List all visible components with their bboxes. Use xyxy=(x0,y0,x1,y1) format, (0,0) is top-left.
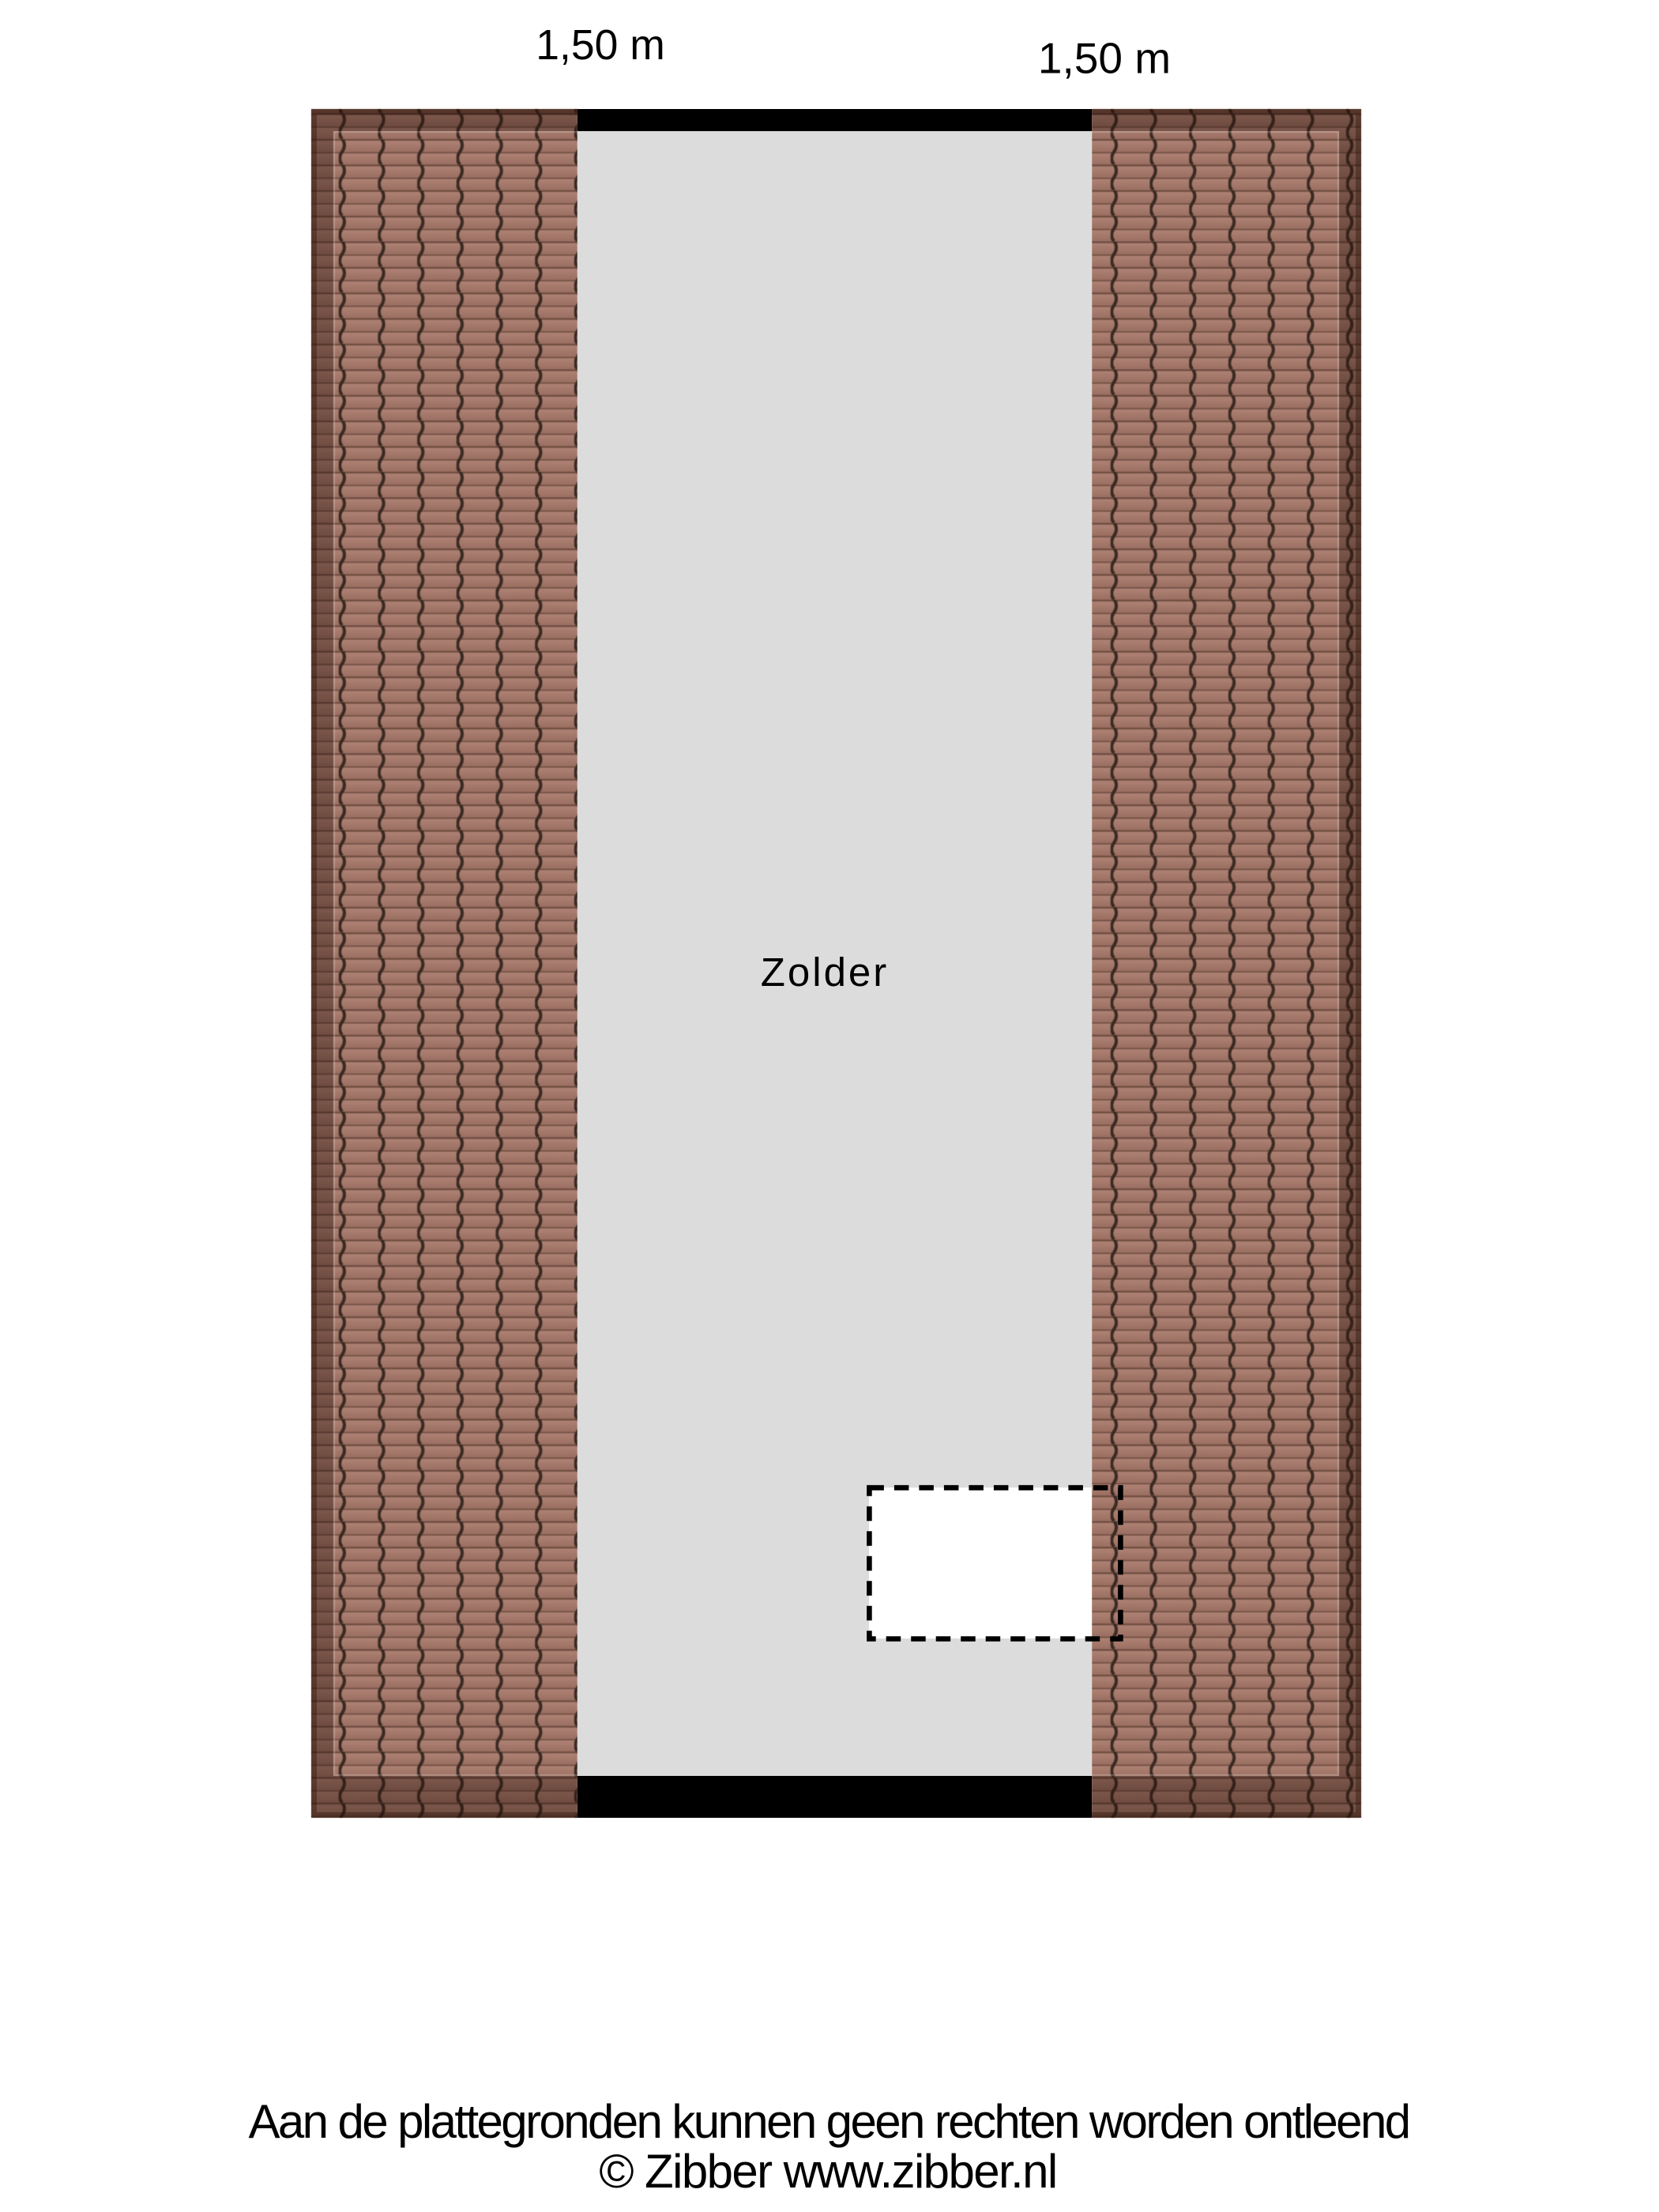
svg-text:1,50 m: 1,50 m xyxy=(1038,34,1171,83)
svg-text:1,50 m: 1,50 m xyxy=(536,22,665,69)
svg-text:Zolder: Zolder xyxy=(761,950,890,995)
svg-text:Aan de plattegronden kunnen ge: Aan de plattegronden kunnen geen rechten… xyxy=(248,2095,1409,2148)
svg-text:© Zibber www.zibber.nl: © Zibber www.zibber.nl xyxy=(599,2145,1056,2198)
